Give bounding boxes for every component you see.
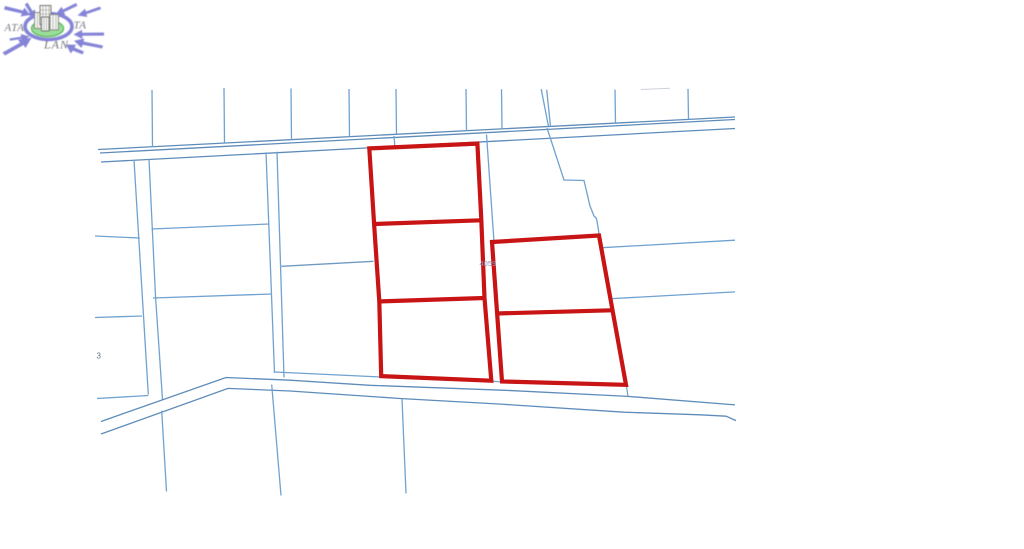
svg-text:3: 3 [97,352,102,361]
svg-text:4059: 4059 [480,259,497,268]
svg-text:TA: TA [74,20,87,32]
svg-text:LAN: LAN [43,38,69,52]
svg-text:ATA: ATA [4,22,25,34]
